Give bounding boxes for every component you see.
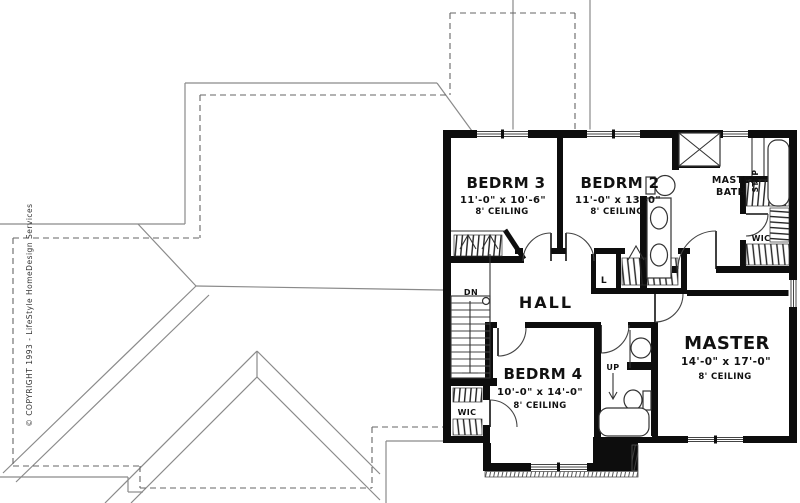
bedrm4-ceiling: 8' CEILING — [513, 401, 566, 411]
floor-plan-svg: BEDRM 3 11'-0" x 10'-6" 8' CEILING BEDRM… — [0, 0, 800, 503]
stairs-down — [451, 254, 490, 378]
bedrm4-wic-label: WIC — [458, 408, 477, 417]
window-master-bottom — [688, 436, 743, 444]
door-small-bath — [601, 325, 629, 353]
door-master — [655, 294, 683, 322]
dn-label: DN — [464, 288, 478, 297]
master-name: MASTER — [684, 333, 770, 354]
master-ceiling: 8' CEILING — [698, 372, 751, 382]
door-bedrm4 — [498, 328, 526, 356]
bedrm4-dims: 10'-0" x 14'-0" — [497, 387, 583, 398]
bedrm3-name: BEDRM 3 — [466, 174, 545, 192]
master-wic-label: WIC — [752, 234, 771, 243]
copyright-text: © COPYRIGHT 1993 - LifeStyle HomeDesign … — [25, 203, 34, 426]
hall-label: HALL — [519, 293, 573, 312]
door-bedrm3 — [523, 233, 551, 261]
master-bath-label-2: BATH — [716, 187, 746, 198]
bedrm3-dims: 11'-0" x 10'-6" — [460, 195, 546, 206]
bedrm2-dims: 11'-0" x 13'-0" — [575, 195, 661, 206]
door-master-wic — [746, 214, 768, 236]
floor-plan-page: BEDRM 3 11'-0" x 10'-6" 8' CEILING BEDRM… — [0, 0, 800, 503]
window-bedrm3 — [477, 130, 528, 139]
bedrm3-ceiling: 8' CEILING — [475, 207, 528, 217]
bedrm4-name: BEDRM 4 — [503, 365, 582, 383]
bedrm2-ceiling: 8' CEILING — [590, 207, 643, 217]
up-arrow — [609, 373, 617, 399]
window-master-bath — [723, 130, 748, 139]
window-bedrm2 — [587, 130, 640, 139]
up-label: UP — [606, 363, 619, 372]
toilet-small-bath — [624, 390, 651, 410]
window-master-side — [789, 280, 798, 307]
window-bedrm4 — [531, 463, 587, 472]
vanity-master — [647, 198, 671, 278]
bedrm2-name: BEDRM 2 — [580, 174, 659, 192]
master-dims: 14'-0" x 17'-0" — [681, 356, 771, 368]
tub-step-label: STEP — [751, 170, 760, 193]
tub-small-bath — [599, 408, 649, 436]
linen-closet-label: L — [601, 276, 607, 286]
shower — [679, 133, 720, 166]
door-bedrm2 — [566, 233, 594, 261]
